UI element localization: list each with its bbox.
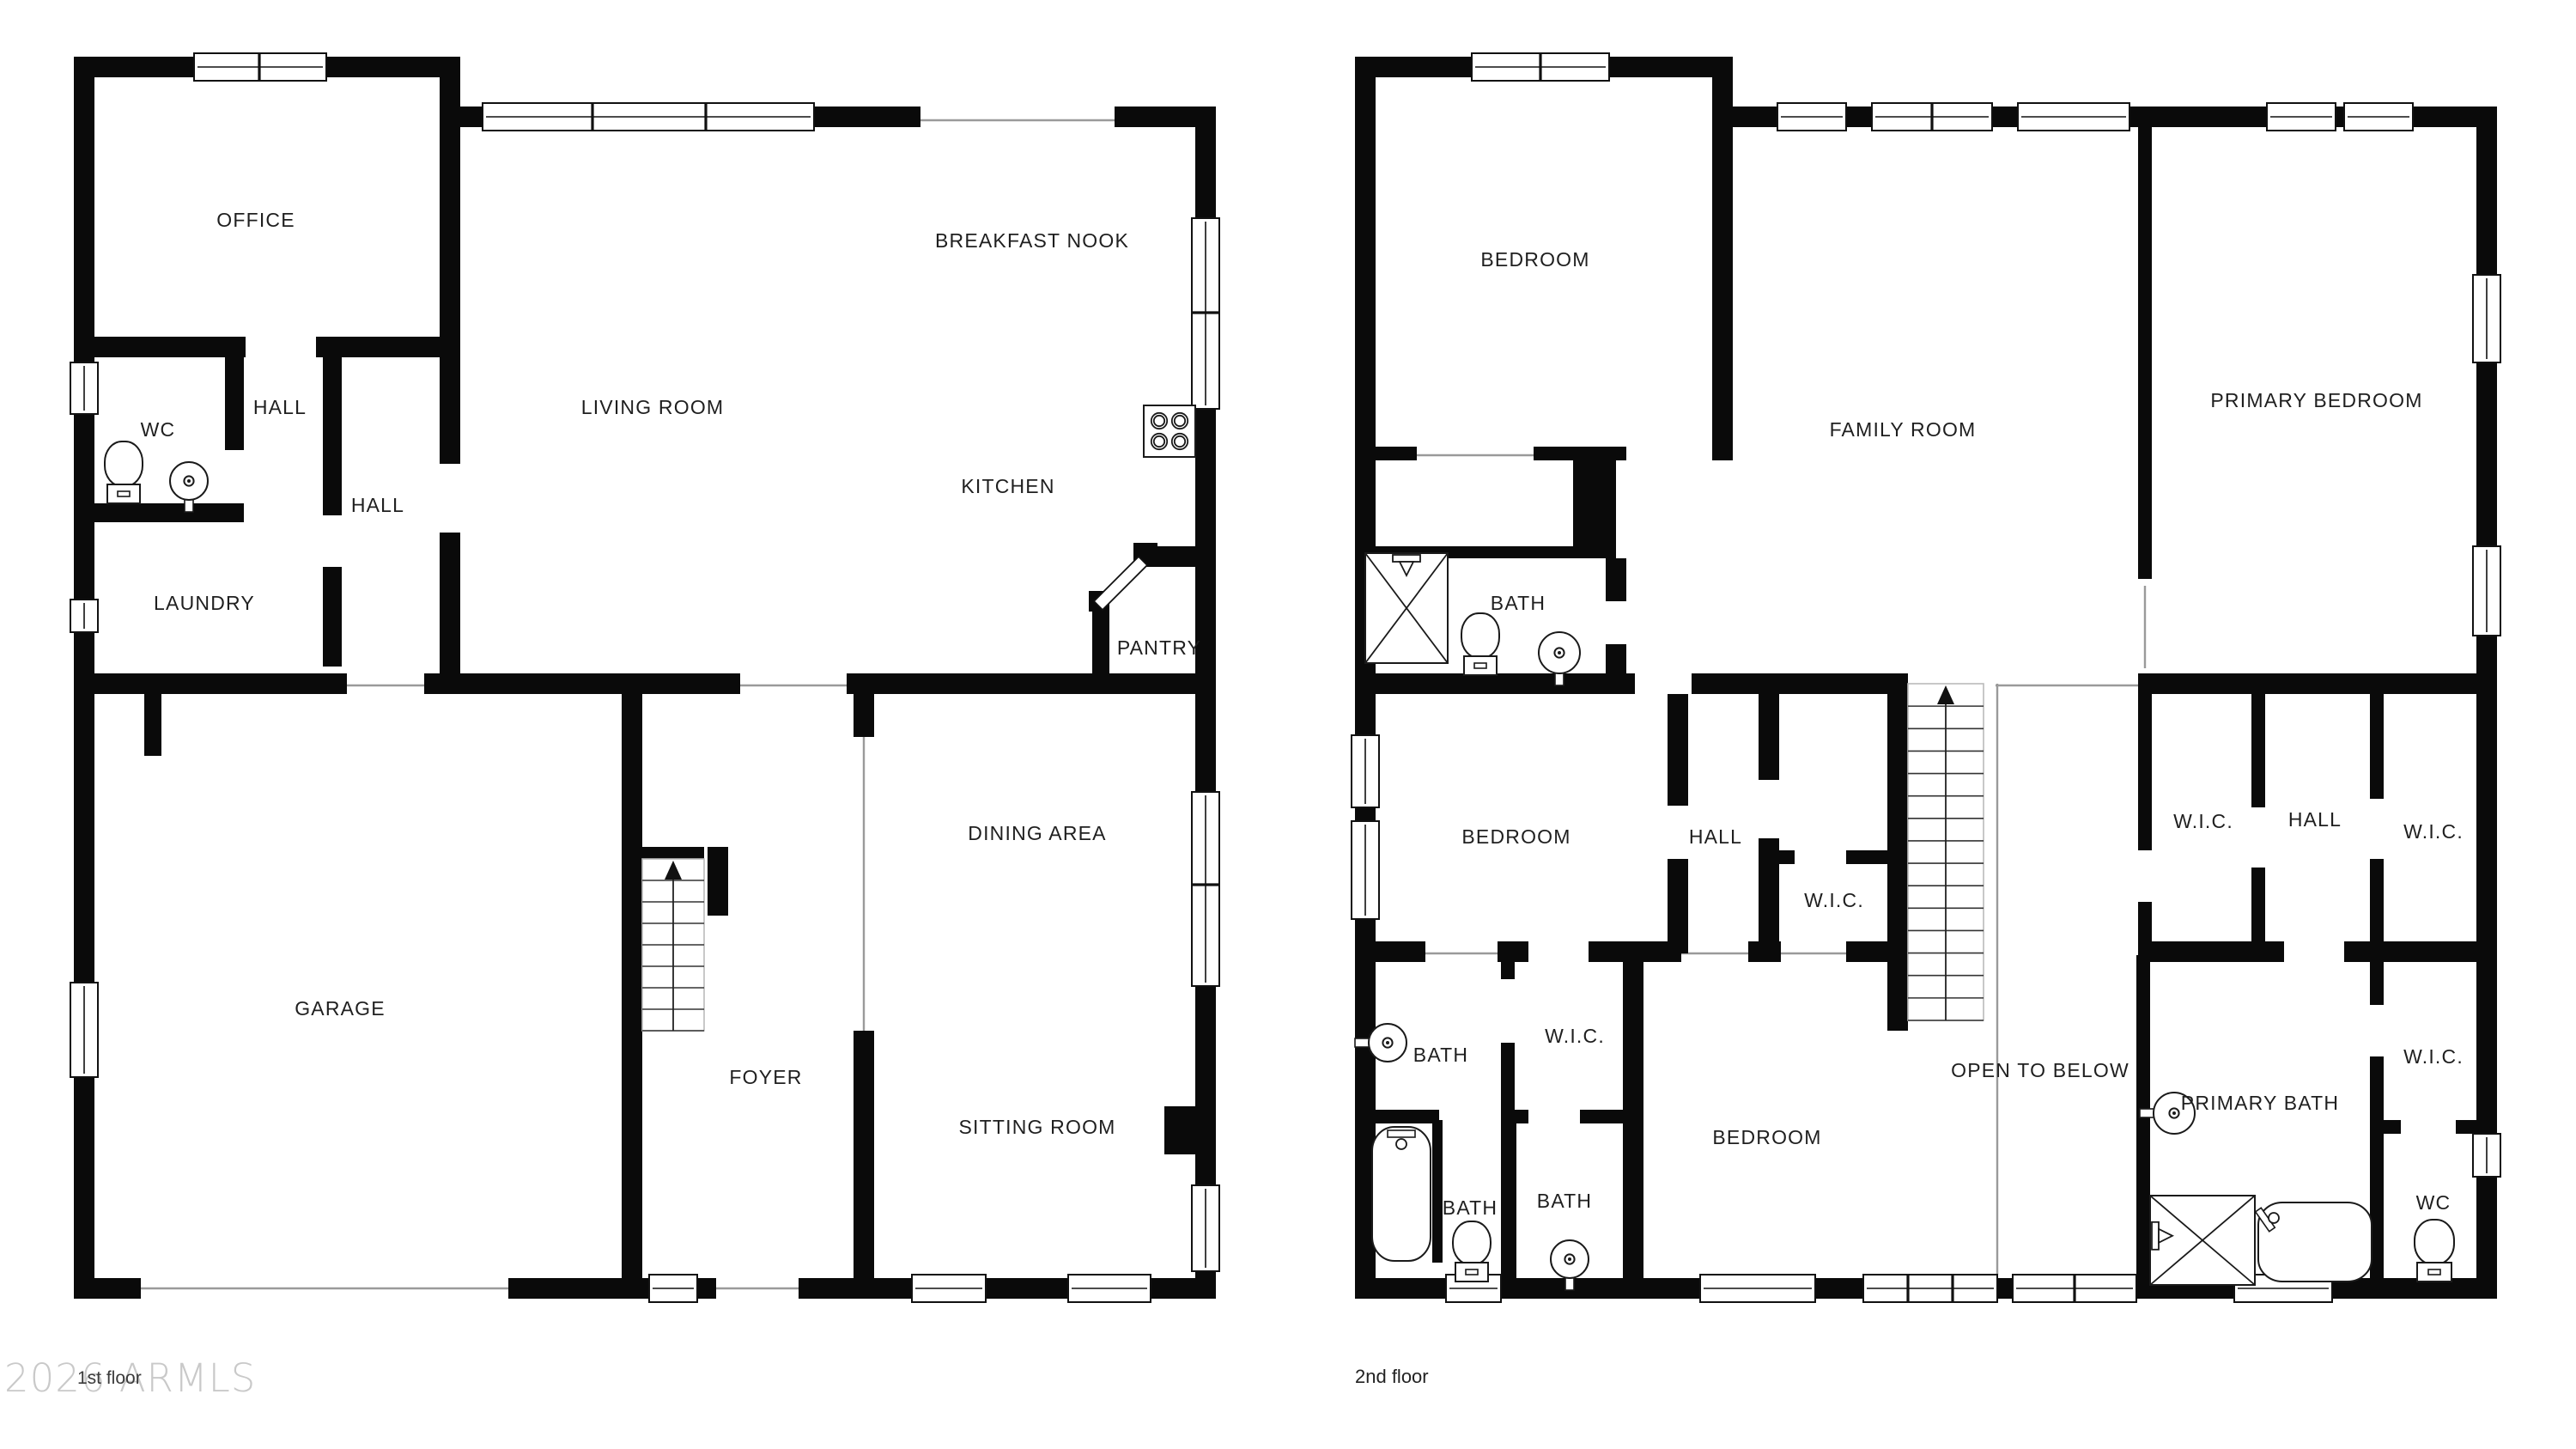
pantry-door [1094, 557, 1147, 610]
room-label-primary-bath: PRIMARY BATH [2181, 1092, 2339, 1114]
room-label-kitchen: KITCHEN [961, 475, 1054, 497]
floorplan-canvas: OFFICEBREAKFAST NOOKLIVING ROOMKITCHENWC… [0, 0, 2576, 1449]
toilet-icon [105, 441, 143, 503]
room-label-foyer: FOYER [729, 1066, 802, 1088]
room-label-laundry: LAUNDRY [154, 592, 255, 614]
room-label-wc: WC [2416, 1191, 2451, 1214]
room-label-hall-upper: HALL [253, 396, 307, 418]
room-label-open-to-below: OPEN TO BELOW [1951, 1059, 2129, 1081]
room-label-primary-bedroom: PRIMARY BEDROOM [2210, 389, 2422, 411]
room-label-pantry: PANTRY [1117, 636, 1201, 659]
floor2-caption: 2nd floor [1355, 1367, 1429, 1386]
room-label-bath-3: BATH [1443, 1196, 1498, 1219]
shower-icon [2150, 1196, 2255, 1285]
bathtub-icon [1372, 1127, 1431, 1261]
room-label-sitting-room: SITTING ROOM [958, 1116, 1115, 1138]
toilet-icon [2415, 1220, 2454, 1282]
room-label-hall-corridor: HALL [351, 494, 404, 516]
room-label-wic-3: W.I.C. [2403, 820, 2464, 843]
room-label-bedroom-2: BEDROOM [1461, 825, 1571, 848]
room-label-hall-1: HALL [1689, 825, 1742, 848]
room-label-wc: WC [141, 418, 176, 441]
stove-icon [1144, 405, 1195, 457]
staircase-2nd-floor [1908, 684, 1984, 1020]
door-openings [1417, 455, 2145, 1275]
floorplan-svg: OFFICEBREAKFAST NOOKLIVING ROOMKITCHENWC… [0, 0, 2576, 1449]
room-label-wic-5: W.I.C. [2403, 1045, 2464, 1068]
room-label-dining-area: DINING AREA [968, 822, 1106, 844]
floor1-caption: 1st floor [77, 1369, 142, 1387]
room-label-wic-1: W.I.C. [1804, 889, 1864, 911]
room-label-hall-2: HALL [2288, 808, 2342, 831]
room-label-bath-2: BATH [1413, 1044, 1468, 1066]
room-label-living-room: LIVING ROOM [581, 396, 725, 418]
room-label-bath-1: BATH [1491, 592, 1546, 614]
shower-icon [1365, 553, 1448, 663]
staircase-1st-floor [642, 859, 704, 1031]
room-label-garage: GARAGE [295, 997, 386, 1020]
toilet-icon [1461, 613, 1499, 675]
room-label-family-room: FAMILY ROOM [1830, 418, 1977, 441]
first-floor-plan: OFFICEBREAKFAST NOOKLIVING ROOMKITCHENWC… [70, 53, 1219, 1302]
room-label-bedroom-1: BEDROOM [1480, 248, 1589, 271]
room-label-bedroom-3: BEDROOM [1712, 1126, 1821, 1148]
room-label-wic-2: W.I.C. [2173, 810, 2233, 832]
room-label-wic-4: W.I.C. [1545, 1025, 1605, 1047]
room-label-bath-4: BATH [1537, 1190, 1592, 1212]
bathtub-icon [2256, 1202, 2372, 1282]
second-floor-plan: BEDROOMFAMILY ROOMPRIMARY BEDROOMBATHBED… [1352, 53, 2500, 1302]
room-label-office: OFFICE [216, 209, 295, 231]
room-label-breakfast-nook: BREAKFAST NOOK [935, 229, 1129, 252]
toilet-icon [1453, 1221, 1491, 1282]
